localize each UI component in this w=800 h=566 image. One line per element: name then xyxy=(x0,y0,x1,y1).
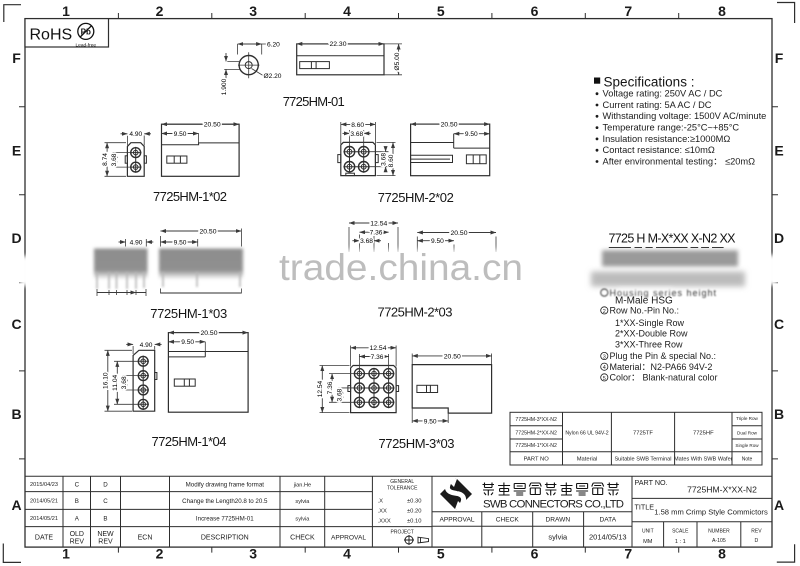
svg-text:E: E xyxy=(774,143,783,159)
svg-text:sylvia: sylvia xyxy=(295,517,310,523)
svg-text:7725HM-1*03: 7725HM-1*03 xyxy=(150,306,227,321)
svg-text:7: 7 xyxy=(624,3,632,19)
svg-text:±0.20: ±0.20 xyxy=(407,509,421,515)
svg-text:22.30: 22.30 xyxy=(329,41,346,48)
svg-text:3.68: 3.68 xyxy=(360,238,373,245)
svg-text:REV: REV xyxy=(751,528,762,534)
svg-text:Color： Blank-natural color: Color： Blank-natural color xyxy=(610,373,718,383)
svg-text:PROJECT: PROJECT xyxy=(391,529,414,535)
svg-text:REV: REV xyxy=(98,539,113,546)
svg-text:After environmental testing： ≤: After environmental testing： ≤20mΩ xyxy=(603,156,756,166)
svg-text:Modify drawing frame format: Modify drawing frame format xyxy=(186,481,265,488)
svg-text:F: F xyxy=(12,50,21,66)
svg-text:sylvia: sylvia xyxy=(295,499,310,505)
svg-text:±0.30: ±0.30 xyxy=(407,499,421,505)
svg-text:4: 4 xyxy=(603,365,606,371)
svg-text:9.50: 9.50 xyxy=(424,418,437,425)
svg-text:20.50: 20.50 xyxy=(441,122,458,129)
svg-text:trade.china.cn: trade.china.cn xyxy=(279,247,523,288)
svg-text:9.50: 9.50 xyxy=(174,239,187,246)
svg-text:REV: REV xyxy=(70,539,85,546)
svg-text:Change the Length20.8 to 20.5: Change the Length20.8 to 20.5 xyxy=(182,498,268,505)
svg-text:20.50: 20.50 xyxy=(444,353,461,360)
svg-text:5: 5 xyxy=(437,3,445,19)
svg-text:2014/05/21: 2014/05/21 xyxy=(30,516,58,522)
svg-text:B: B xyxy=(103,516,107,523)
svg-text:6: 6 xyxy=(531,546,539,562)
svg-text:3: 3 xyxy=(249,546,257,562)
svg-text:Increase 7725HM-01: Increase 7725HM-01 xyxy=(196,516,254,523)
svg-text:TITLE: TITLE xyxy=(635,503,655,512)
svg-text:7725HF: 7725HF xyxy=(693,430,714,436)
svg-text:3.68: 3.68 xyxy=(336,388,343,401)
svg-text:±0.10: ±0.10 xyxy=(407,519,421,525)
svg-text:B: B xyxy=(774,406,784,422)
svg-text:1.58 mm Crimp Style Commictors: 1.58 mm Crimp Style Commictors xyxy=(654,508,768,517)
svg-text:8.60: 8.60 xyxy=(388,154,395,167)
svg-text:2: 2 xyxy=(603,309,606,315)
svg-text:RoHS: RoHS xyxy=(30,27,73,44)
svg-text:2: 2 xyxy=(156,546,164,562)
svg-text:C: C xyxy=(11,316,21,332)
svg-text:B: B xyxy=(75,498,79,505)
svg-text:.XXX: .XXX xyxy=(378,519,391,525)
svg-text:7725HM-1*02: 7725HM-1*02 xyxy=(153,189,227,204)
svg-text:8.74: 8.74 xyxy=(102,153,109,166)
svg-text:7725HM-1*XX-N2: 7725HM-1*XX-N2 xyxy=(515,443,557,449)
svg-text:A: A xyxy=(774,497,784,513)
svg-text:9.50: 9.50 xyxy=(174,131,187,138)
svg-text:F: F xyxy=(775,50,784,66)
svg-text:NEW: NEW xyxy=(97,531,114,538)
svg-text:ECN: ECN xyxy=(138,534,153,541)
svg-text:Lead-free: Lead-free xyxy=(76,42,97,48)
svg-text:7725HM-2*02: 7725HM-2*02 xyxy=(378,190,454,205)
svg-text:3.68: 3.68 xyxy=(121,376,128,389)
svg-text:D: D xyxy=(774,230,784,246)
svg-text:7725HM-01: 7725HM-01 xyxy=(283,94,345,109)
svg-text:NUMBER: NUMBER xyxy=(708,528,730,534)
svg-text:7.36: 7.36 xyxy=(370,230,383,237)
svg-text:UNIT: UNIT xyxy=(642,528,654,534)
svg-text:4: 4 xyxy=(343,546,351,562)
svg-text:7725 H M-X*XX X-N2 XX: 7725 H M-X*XX X-N2 XX xyxy=(609,232,737,246)
svg-text:4.90: 4.90 xyxy=(129,131,142,138)
svg-text:OLD: OLD xyxy=(70,531,84,538)
svg-text:APPROVAL: APPROVAL xyxy=(439,517,474,524)
svg-text:20.50: 20.50 xyxy=(450,230,467,237)
svg-text:Current rating: 5A AC / DC: Current rating: 5A AC / DC xyxy=(603,100,712,110)
svg-text:7: 7 xyxy=(624,546,632,562)
svg-text:APPROVAL: APPROVAL xyxy=(331,534,366,541)
svg-text:DRAWN: DRAWN xyxy=(545,517,570,524)
svg-text:7725HM-3*03: 7725HM-3*03 xyxy=(379,436,455,451)
svg-text:D: D xyxy=(755,538,759,544)
svg-text:5: 5 xyxy=(437,546,445,562)
svg-text:D: D xyxy=(11,230,21,246)
svg-text:Material: Material xyxy=(577,456,598,462)
svg-text:Withstanding voltage: 1500V AC: Withstanding voltage: 1500V AC/minute xyxy=(603,111,767,121)
svg-text:20.50: 20.50 xyxy=(204,122,221,129)
svg-text:12.54: 12.54 xyxy=(370,220,387,227)
svg-text:2: 2 xyxy=(156,3,164,19)
svg-text:2015/04/23: 2015/04/23 xyxy=(30,482,58,488)
svg-text:A-105: A-105 xyxy=(712,538,726,544)
svg-text:GENERAL: GENERAL xyxy=(390,479,414,485)
svg-text:6.20: 6.20 xyxy=(267,42,280,49)
svg-text:11.04: 11.04 xyxy=(112,374,119,390)
svg-text:Single Row: Single Row xyxy=(735,443,759,448)
svg-text:SWB CONNECTORS CO.,LTD: SWB CONNECTORS CO.,LTD xyxy=(483,499,624,511)
svg-text:7725TF: 7725TF xyxy=(633,430,653,436)
svg-text:4: 4 xyxy=(343,3,351,19)
svg-text:D: D xyxy=(103,481,108,488)
svg-text:7725HM-X*XX-N2: 7725HM-X*XX-N2 xyxy=(687,485,757,495)
svg-text:3: 3 xyxy=(249,3,257,19)
svg-text:CHECK: CHECK xyxy=(496,517,520,524)
svg-text:A: A xyxy=(75,516,80,523)
svg-text:1 : 1: 1 : 1 xyxy=(675,539,686,545)
svg-text:Voltage rating: 250V AC / DC: Voltage rating: 250V AC / DC xyxy=(603,89,723,99)
svg-text:5: 5 xyxy=(603,376,606,382)
svg-text:1.900: 1.900 xyxy=(221,78,228,95)
svg-text:7725HM-2*03: 7725HM-2*03 xyxy=(378,305,453,320)
svg-text:3.68: 3.68 xyxy=(111,153,118,166)
svg-text:Temperature range:-25°C~+85°C: Temperature range:-25°C~+85°C xyxy=(603,123,740,133)
svg-text:2014/05/21: 2014/05/21 xyxy=(30,499,58,505)
svg-text:.XX: .XX xyxy=(378,509,387,515)
svg-text:Nylon 66 UL 94V-2: Nylon 66 UL 94V-2 xyxy=(565,430,608,436)
svg-text:C: C xyxy=(103,498,108,505)
svg-text:Ø2.20: Ø2.20 xyxy=(264,73,282,80)
svg-text:3: 3 xyxy=(603,355,606,361)
svg-text:3.68: 3.68 xyxy=(380,153,387,166)
svg-text:2*XX-Double Row: 2*XX-Double Row xyxy=(615,329,688,339)
svg-text:1: 1 xyxy=(62,546,70,562)
svg-text:Material：N2-PA66 94V-2: Material：N2-PA66 94V-2 xyxy=(610,362,713,372)
svg-text:7.36: 7.36 xyxy=(327,381,334,394)
svg-text:C: C xyxy=(75,481,80,488)
svg-text:.X: .X xyxy=(378,499,384,505)
svg-text:Row No.-Pin No.:: Row No.-Pin No.: xyxy=(610,306,680,316)
svg-text:C: C xyxy=(774,316,784,332)
svg-text:Dual Row: Dual Row xyxy=(737,430,758,435)
svg-text:Contact resistance: ≤10mΩ: Contact resistance: ≤10mΩ xyxy=(603,145,715,155)
svg-text:20.50: 20.50 xyxy=(199,228,216,235)
svg-text:jian.He: jian.He xyxy=(293,482,311,488)
svg-text:DATE: DATE xyxy=(35,534,53,541)
svg-text:16.10: 16.10 xyxy=(103,372,110,389)
svg-text:Note: Note xyxy=(742,456,753,462)
svg-text:7725HM-1*04: 7725HM-1*04 xyxy=(152,434,227,449)
svg-text:Mates With SWB Wafer: Mates With SWB Wafer xyxy=(674,456,733,462)
svg-text:12.54: 12.54 xyxy=(317,380,324,397)
svg-text:4.90: 4.90 xyxy=(130,239,143,246)
svg-text:8.60: 8.60 xyxy=(351,122,364,129)
svg-text:8: 8 xyxy=(718,3,726,19)
svg-text:1: 1 xyxy=(62,3,70,19)
svg-text:4.90: 4.90 xyxy=(140,342,153,349)
svg-text:9.50: 9.50 xyxy=(465,131,478,138)
svg-text:DESCRIPTION: DESCRIPTION xyxy=(201,534,249,541)
svg-text:B: B xyxy=(11,406,21,422)
svg-text:7725HM-2*XX-N2: 7725HM-2*XX-N2 xyxy=(515,430,557,436)
svg-text:2014/05/13: 2014/05/13 xyxy=(589,533,627,542)
svg-text:Insulation resistance:≥1000MΩ: Insulation resistance:≥1000MΩ xyxy=(603,134,731,144)
svg-text:9.50: 9.50 xyxy=(181,339,194,346)
svg-text:PART NO.: PART NO. xyxy=(635,478,668,487)
svg-text:TOLERANCE: TOLERANCE xyxy=(387,486,418,492)
svg-text:CHECK: CHECK xyxy=(290,534,315,541)
svg-text:1*XX-Single Row: 1*XX-Single Row xyxy=(615,318,685,328)
svg-text:sylvia: sylvia xyxy=(548,533,568,542)
svg-text:A: A xyxy=(11,497,21,513)
svg-text:3.68: 3.68 xyxy=(350,131,363,138)
svg-text:7.36: 7.36 xyxy=(371,354,384,361)
svg-text:8: 8 xyxy=(718,546,726,562)
svg-text:12.54: 12.54 xyxy=(369,345,386,352)
svg-text:7725HM-3*XX-N2: 7725HM-3*XX-N2 xyxy=(515,417,557,423)
svg-text:MM: MM xyxy=(643,539,653,545)
svg-text:3*XX-Three Row: 3*XX-Three Row xyxy=(615,339,683,349)
svg-text:Triple Row: Triple Row xyxy=(736,416,758,421)
svg-text:20.50: 20.50 xyxy=(200,330,217,337)
svg-text:Specifications :: Specifications : xyxy=(604,75,695,90)
svg-text:9.50: 9.50 xyxy=(431,238,444,245)
svg-text:SCALE: SCALE xyxy=(672,528,689,534)
svg-text:DATA: DATA xyxy=(599,517,616,524)
svg-text:E: E xyxy=(12,143,21,159)
svg-text:6: 6 xyxy=(531,3,539,19)
svg-text:PART NO: PART NO xyxy=(524,456,550,462)
svg-text:Plug the Pin & special No.:: Plug the Pin & special No.: xyxy=(610,351,717,361)
svg-text:Ø5.00: Ø5.00 xyxy=(394,52,401,70)
svg-text:Suitable SWB Terminal: Suitable SWB Terminal xyxy=(614,456,671,462)
